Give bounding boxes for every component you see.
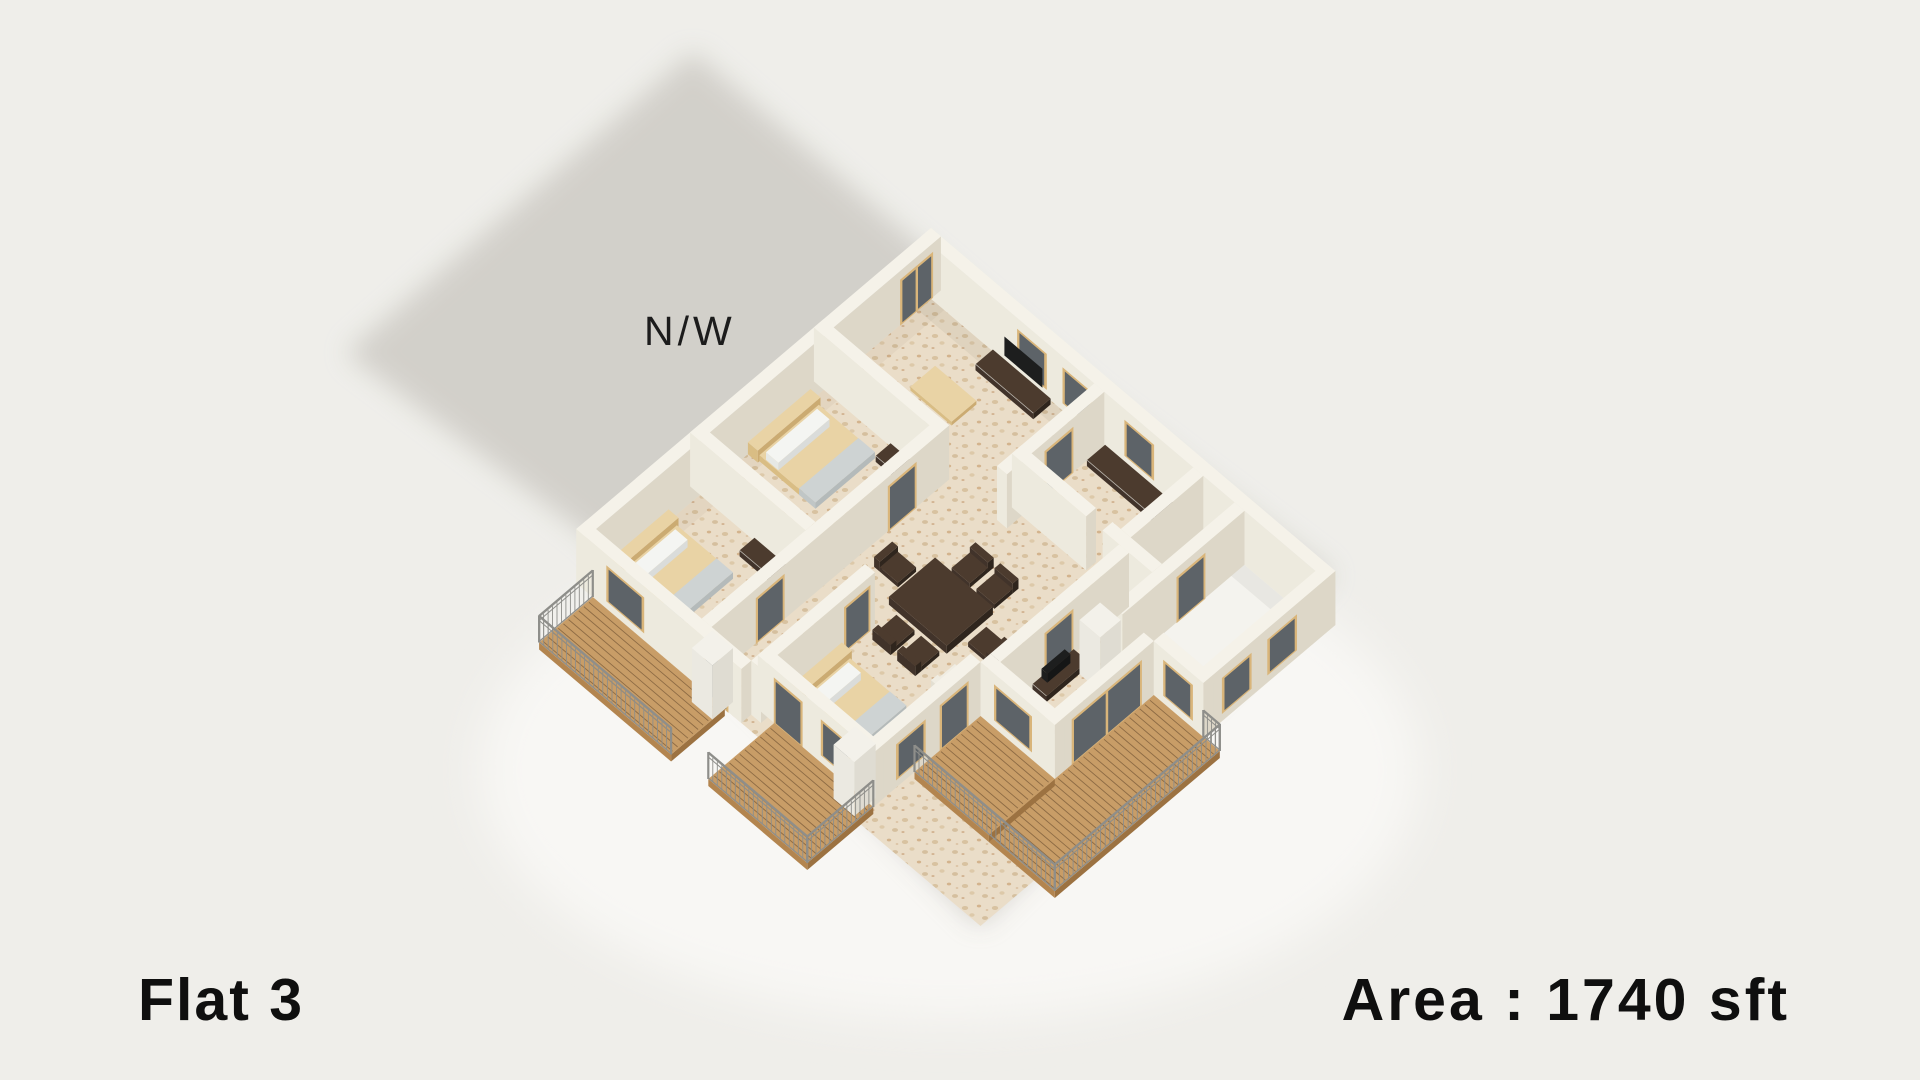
floorplan-3d-render xyxy=(0,0,1920,1080)
flat-name-label: Flat 3 xyxy=(138,966,304,1034)
compass-label: N/W xyxy=(644,308,736,355)
area-label: Area : 1740 sft xyxy=(1342,966,1790,1034)
floorplan-page: N/W Flat 3 Area : 1740 sft xyxy=(0,0,1920,1080)
